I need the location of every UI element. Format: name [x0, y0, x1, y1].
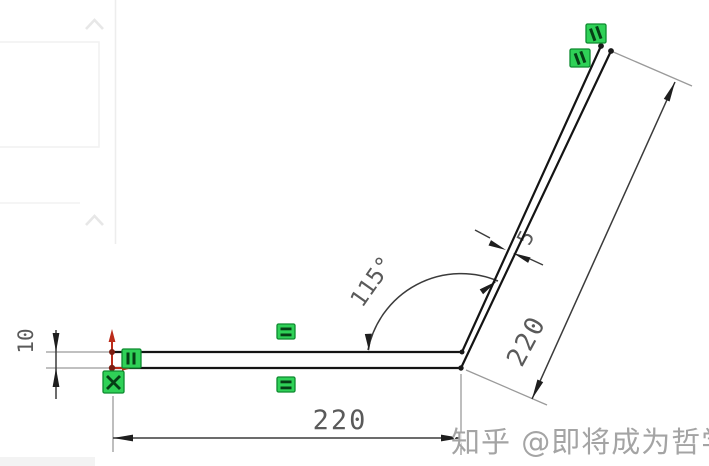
- arrowhead-up-icon: [53, 368, 60, 387]
- endpoint-marker: [460, 350, 465, 355]
- faint-panel-box: [0, 42, 99, 147]
- chevron-up-icon[interactable]: [86, 20, 103, 29]
- origin-point[interactable]: [109, 365, 115, 371]
- dimension-left-height[interactable]: 10: [14, 328, 59, 399]
- zhihu-watermark: 知乎 @即将成为哲学带师: [451, 419, 709, 461]
- extension-lines: [46, 51, 692, 455]
- background-panel-lines: [0, 0, 116, 466]
- equal-constraint-icon[interactable]: [277, 377, 295, 392]
- dimension-value-left-height[interactable]: 10: [14, 328, 38, 353]
- endpoint-marker: [608, 48, 614, 54]
- arrowhead-down-icon: [532, 380, 543, 400]
- cad-sketch-canvas[interactable]: 220 220 115° 5 10: [0, 0, 709, 466]
- endpoint-marker: [598, 43, 604, 49]
- sketch-line-slant-inner[interactable]: [462, 46, 601, 352]
- extension-line: [466, 370, 547, 405]
- chevron-up-icon[interactable]: [86, 216, 103, 225]
- bar-glyph: [133, 353, 136, 365]
- arrowhead-icon: [489, 240, 507, 250]
- equals-glyph: [281, 328, 292, 331]
- equals-glyph: [281, 381, 292, 384]
- endpoint-marker: [458, 365, 463, 370]
- fixed-constraint-icon[interactable]: [103, 371, 124, 393]
- faint-bottom-strip: [0, 457, 95, 466]
- bar-glyph: [127, 353, 130, 365]
- leader-line: [475, 230, 490, 238]
- arrowhead-down-icon: [53, 333, 60, 352]
- vertical-constraint-icon[interactable]: [122, 349, 141, 368]
- arrowhead-left-icon: [113, 435, 133, 442]
- equal-constraint-icon[interactable]: [570, 49, 590, 67]
- origin-y-arrowhead-icon: [109, 329, 116, 342]
- leader-line: [530, 259, 543, 265]
- extension-line: [611, 51, 692, 86]
- dimension-thickness[interactable]: 5: [475, 226, 543, 265]
- equals-glyph: [281, 334, 292, 337]
- equal-constraint-icon[interactable]: [277, 324, 295, 339]
- dimension-bottom-length[interactable]: 220: [113, 405, 461, 441]
- equal-constraint-icon[interactable]: [586, 24, 606, 43]
- dimension-line[interactable]: [532, 82, 675, 399]
- equals-glyph: [281, 387, 292, 390]
- dimension-value-angle[interactable]: 115°: [346, 252, 399, 312]
- dimension-value-slant[interactable]: 220: [501, 311, 552, 372]
- origin-point[interactable]: [109, 349, 115, 355]
- arrowhead-up-icon: [664, 82, 675, 102]
- dimension-value-bottom[interactable]: 220: [313, 405, 368, 436]
- angle-arc[interactable]: [368, 274, 498, 350]
